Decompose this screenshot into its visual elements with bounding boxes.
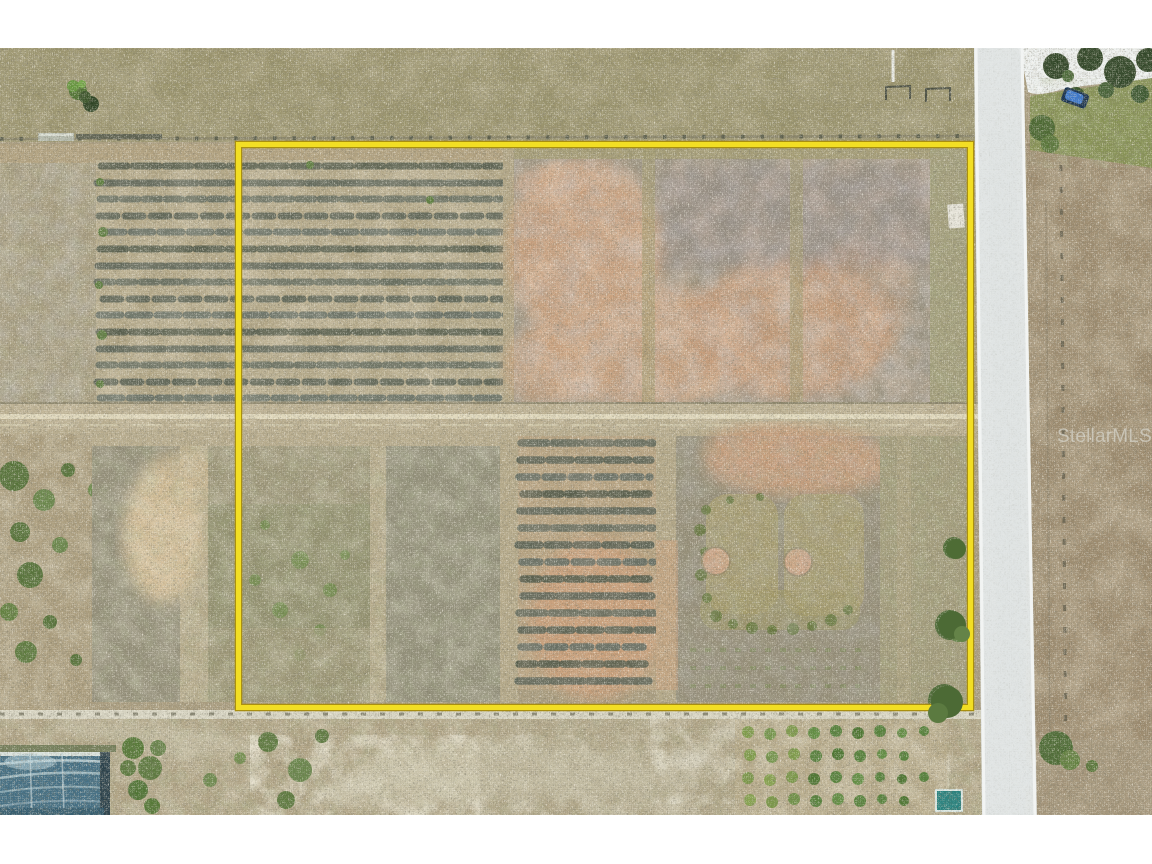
svg-text:StellarMLS: StellarMLS bbox=[1057, 426, 1152, 447]
